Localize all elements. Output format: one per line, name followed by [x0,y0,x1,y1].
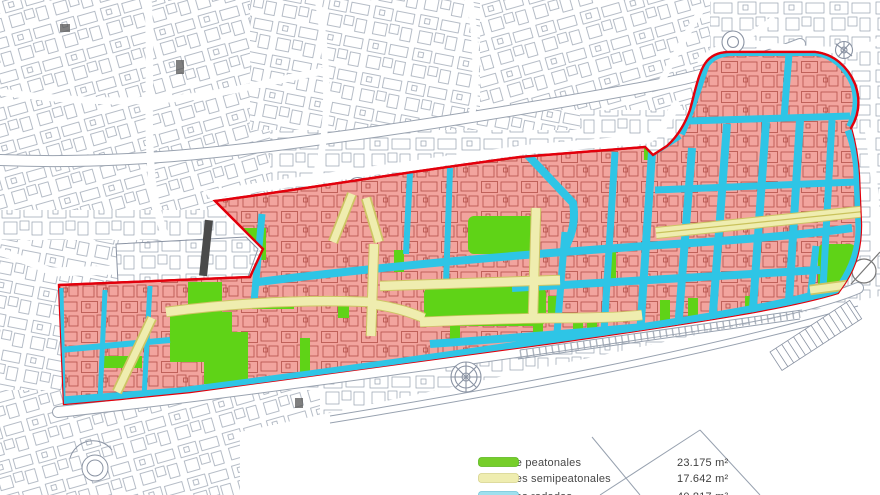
legend-label: Calles rodadas [496,491,677,495]
legend-row-semipedestrian: Calles semipeatonales 17.642 m² [478,473,772,485]
semipedestrian-swatch [478,473,519,483]
city-map [0,0,880,495]
legend-row-pedestrian: Calle peatonales 23.175 m² [478,457,772,469]
legend-value: 23.175 m² [677,457,772,469]
legend-value: 17.642 m² [677,473,772,485]
legend-label: Calle peatonales [496,457,677,469]
legend-row-road: Calles rodadas 40.817 m² [478,491,772,495]
road-swatch [478,491,519,495]
fountain-rotunda [451,362,481,392]
map-screenshot: Calle peatonales 23.175 m² Calles semipe… [0,0,880,495]
pedestrian-swatch [478,457,519,467]
legend-label: Calles semipeatonales [496,473,677,485]
legend-value: 40.817 m² [677,491,772,495]
